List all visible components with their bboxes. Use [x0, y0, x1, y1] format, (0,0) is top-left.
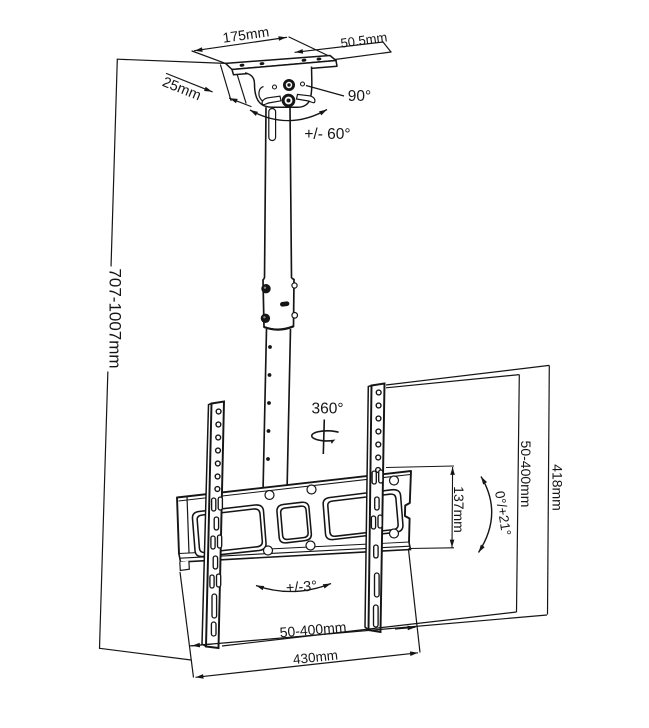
svg-text:+/- 60°: +/- 60° [304, 126, 350, 143]
svg-text:360°: 360° [311, 401, 343, 418]
svg-text:90°: 90° [348, 88, 371, 105]
svg-text:707-1007mm: 707-1007mm [106, 268, 125, 368]
svg-text:137mm: 137mm [451, 486, 467, 533]
svg-text:+/-3°: +/-3° [285, 578, 317, 596]
svg-text:418mm: 418mm [549, 464, 565, 511]
svg-text:50-400mm: 50-400mm [518, 441, 534, 508]
